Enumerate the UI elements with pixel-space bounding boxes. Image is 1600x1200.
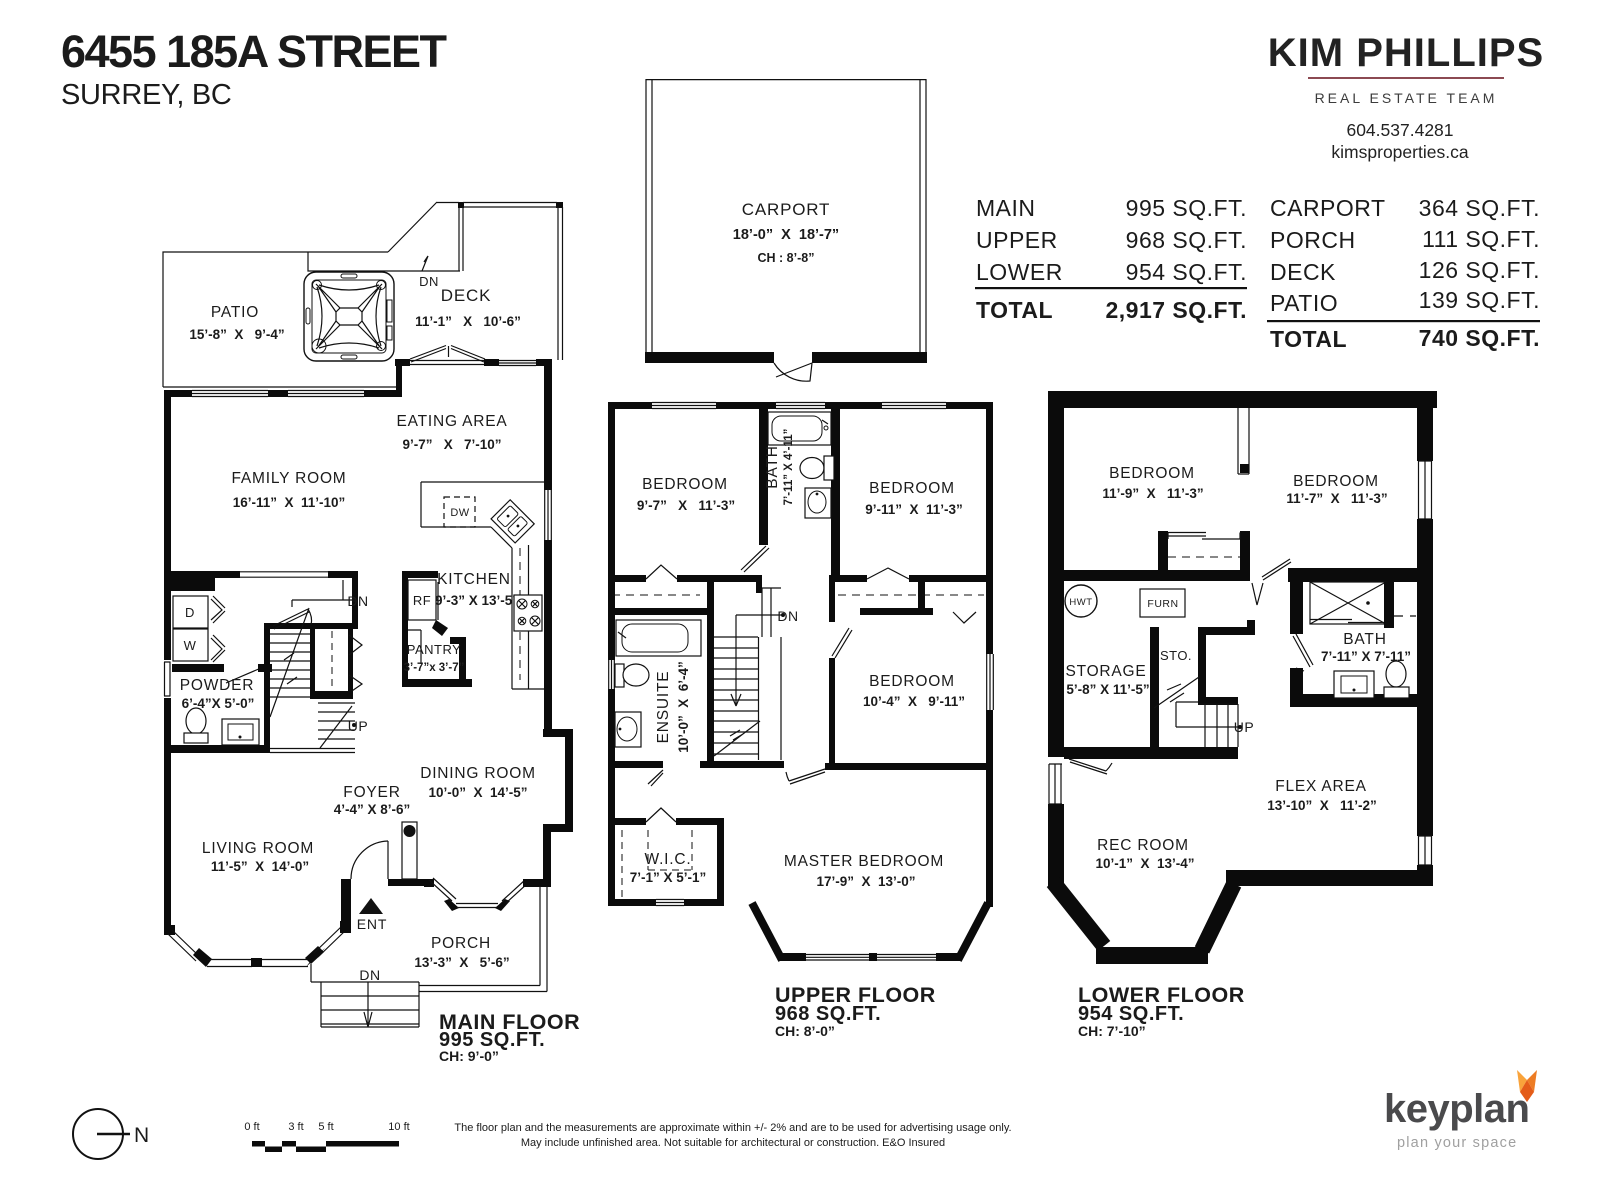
svg-text:PORCH: PORCH bbox=[431, 935, 491, 952]
svg-text:18’-0” X 18’-7”: 18’-0” X 18’-7” bbox=[733, 227, 839, 243]
svg-text:11’-9” X 11’-3”: 11’-9” X 11’-3” bbox=[1102, 486, 1203, 501]
svg-text:POWDER: POWDER bbox=[180, 677, 255, 694]
svg-text:REAL ESTATE TEAM: REAL ESTATE TEAM bbox=[1315, 90, 1498, 106]
svg-text:968 SQ.FT.: 968 SQ.FT. bbox=[775, 1003, 881, 1025]
svg-text:CARPORT: CARPORT bbox=[742, 200, 830, 219]
svg-text:TOTAL: TOTAL bbox=[976, 297, 1053, 323]
svg-text:ENSUITE: ENSUITE bbox=[655, 671, 672, 744]
svg-text:DN: DN bbox=[419, 274, 439, 289]
svg-text:RF: RF bbox=[413, 593, 431, 608]
svg-text:139 SQ.FT.: 139 SQ.FT. bbox=[1419, 287, 1540, 313]
svg-text:May include unfinished area. N: May include unfinished area. Not suitabl… bbox=[521, 1137, 945, 1149]
svg-text:DN: DN bbox=[359, 967, 380, 983]
svg-text:LOWER: LOWER bbox=[976, 259, 1063, 285]
svg-text:BATH: BATH bbox=[764, 445, 781, 488]
svg-text:9’-7” X 7’-10”: 9’-7” X 7’-10” bbox=[402, 437, 501, 452]
svg-text:BEDROOM: BEDROOM bbox=[869, 673, 955, 690]
svg-text:EATING AREA: EATING AREA bbox=[396, 413, 507, 430]
svg-text:ENT: ENT bbox=[357, 916, 387, 932]
svg-text:UPPER: UPPER bbox=[976, 227, 1058, 253]
svg-text:plan your space: plan your space bbox=[1397, 1135, 1517, 1151]
svg-text:SURREY, BC: SURREY, BC bbox=[61, 79, 232, 111]
svg-text:995 SQ.FT.: 995 SQ.FT. bbox=[1126, 195, 1247, 221]
svg-text:FOYER: FOYER bbox=[343, 784, 400, 801]
svg-text:DN: DN bbox=[777, 608, 798, 624]
svg-text:17’-9” X 13’-0”: 17’-9” X 13’-0” bbox=[816, 874, 915, 889]
svg-text:954 SQ.FT.: 954 SQ.FT. bbox=[1078, 1003, 1184, 1025]
svg-text:PATIO: PATIO bbox=[211, 304, 259, 321]
svg-text:CH: 9’-0”: CH: 9’-0” bbox=[439, 1048, 499, 1064]
svg-text:STORAGE: STORAGE bbox=[1065, 663, 1146, 680]
svg-text:FLEX AREA: FLEX AREA bbox=[1275, 778, 1367, 795]
svg-text:10’-0” X 6’-4”: 10’-0” X 6’-4” bbox=[676, 661, 691, 753]
svg-text:604.537.4281: 604.537.4281 bbox=[1346, 120, 1453, 140]
svg-text:13’-10” X 11’-2”: 13’-10” X 11’-2” bbox=[1267, 798, 1377, 813]
svg-text:9’-3” X 13’-5”: 9’-3” X 13’-5” bbox=[435, 593, 519, 608]
svg-text:DN: DN bbox=[347, 593, 368, 609]
svg-text:968 SQ.FT.: 968 SQ.FT. bbox=[1126, 227, 1247, 253]
svg-text:13’-3” X 5’-6”: 13’-3” X 5’-6” bbox=[414, 955, 509, 970]
svg-text:LIVING ROOM: LIVING ROOM bbox=[202, 840, 314, 857]
svg-text:2,917 SQ.FT.: 2,917 SQ.FT. bbox=[1105, 297, 1247, 323]
svg-text:10’-1” X 13’-4”: 10’-1” X 13’-4” bbox=[1095, 856, 1194, 871]
svg-text:CH: 8’-0”: CH: 8’-0” bbox=[775, 1023, 835, 1039]
svg-text:11’-1” X 10’-6”: 11’-1” X 10’-6” bbox=[415, 314, 521, 329]
svg-text:9’-11” X 11’-3”: 9’-11” X 11’-3” bbox=[865, 502, 963, 517]
svg-text:UP: UP bbox=[1234, 719, 1254, 735]
svg-text:4’-4” X 8’-6”: 4’-4” X 8’-6” bbox=[334, 802, 411, 817]
svg-text:PATIO: PATIO bbox=[1270, 290, 1338, 316]
svg-text:111 SQ.FT.: 111 SQ.FT. bbox=[1422, 226, 1540, 252]
svg-text:BEDROOM: BEDROOM bbox=[1109, 465, 1195, 482]
svg-text:15’-8” X 9’-4”: 15’-8” X 9’-4” bbox=[189, 327, 284, 342]
svg-text:10 ft: 10 ft bbox=[388, 1121, 409, 1133]
svg-text:STO.: STO. bbox=[1160, 648, 1192, 663]
svg-text:5 ft: 5 ft bbox=[318, 1121, 333, 1133]
svg-text:954 SQ.FT.: 954 SQ.FT. bbox=[1126, 259, 1247, 285]
svg-text:9’-7” X 11’-3”: 9’-7” X 11’-3” bbox=[637, 498, 735, 513]
svg-text:11’-7” X 11’-3”: 11’-7” X 11’-3” bbox=[1286, 491, 1387, 506]
svg-text:BEDROOM: BEDROOM bbox=[1293, 473, 1379, 490]
svg-text:PANTRY: PANTRY bbox=[407, 642, 462, 657]
svg-text:126 SQ.FT.: 126 SQ.FT. bbox=[1419, 257, 1540, 283]
svg-text:FAMILY ROOM: FAMILY ROOM bbox=[231, 470, 346, 487]
svg-text:BATH: BATH bbox=[1343, 631, 1386, 648]
svg-text:364 SQ.FT.: 364 SQ.FT. bbox=[1419, 195, 1540, 221]
svg-text:DINING ROOM: DINING ROOM bbox=[420, 765, 536, 782]
svg-text:CARPORT: CARPORT bbox=[1270, 195, 1386, 221]
svg-text:3’-7”x 3’-7”: 3’-7”x 3’-7” bbox=[404, 662, 465, 674]
svg-text:TOTAL: TOTAL bbox=[1270, 326, 1347, 352]
svg-text:BEDROOM: BEDROOM bbox=[869, 480, 955, 497]
svg-text:kimsproperties.ca: kimsproperties.ca bbox=[1331, 142, 1468, 162]
svg-text:6455 185A STREET: 6455 185A STREET bbox=[61, 26, 447, 77]
svg-text:10’-0” X 14’-5”: 10’-0” X 14’-5” bbox=[428, 785, 527, 800]
svg-text:5’-8” X 11’-5”: 5’-8” X 11’-5” bbox=[1066, 682, 1149, 697]
svg-text:DW: DW bbox=[450, 507, 469, 519]
svg-text:11’-5” X 14’-0”: 11’-5” X 14’-0” bbox=[211, 859, 309, 874]
svg-text:10’-4” X 9’-11”: 10’-4” X 9’-11” bbox=[863, 694, 965, 709]
svg-text:keyplan: keyplan bbox=[1384, 1087, 1529, 1131]
svg-text:HWT: HWT bbox=[1069, 597, 1092, 608]
svg-text:CH : 8’-8”: CH : 8’-8” bbox=[758, 251, 815, 265]
svg-text:PORCH: PORCH bbox=[1270, 227, 1356, 253]
svg-text:CH: 7’-10”: CH: 7’-10” bbox=[1078, 1023, 1146, 1039]
svg-text:7’-11” X 4’-11”: 7’-11” X 4’-11” bbox=[783, 429, 795, 506]
svg-text:DECK: DECK bbox=[1270, 259, 1336, 285]
svg-text:W: W bbox=[184, 638, 197, 653]
svg-text:W.I.C.: W.I.C. bbox=[645, 851, 692, 868]
svg-text:UP: UP bbox=[348, 718, 368, 734]
svg-text:FURN: FURN bbox=[1147, 598, 1178, 610]
svg-text:N: N bbox=[134, 1124, 149, 1147]
svg-text:3 ft: 3 ft bbox=[288, 1121, 303, 1133]
svg-text:D: D bbox=[185, 605, 195, 620]
svg-text:KITCHEN: KITCHEN bbox=[437, 571, 511, 588]
svg-text:BEDROOM: BEDROOM bbox=[642, 476, 728, 493]
svg-text:MAIN: MAIN bbox=[976, 195, 1036, 221]
svg-text:MASTER BEDROOM: MASTER BEDROOM bbox=[784, 853, 944, 870]
svg-text:KIM PHILLIPS: KIM PHILLIPS bbox=[1268, 31, 1544, 75]
svg-text:DECK: DECK bbox=[441, 286, 491, 305]
svg-text:6’-4”X 5’-0”: 6’-4”X 5’-0” bbox=[182, 696, 255, 711]
svg-text:REC ROOM: REC ROOM bbox=[1097, 837, 1189, 854]
svg-text:7’-1” X 5’-1”: 7’-1” X 5’-1” bbox=[630, 870, 707, 885]
svg-text:0 ft: 0 ft bbox=[244, 1121, 259, 1133]
svg-text:The floor plan and the measure: The floor plan and the measurements are … bbox=[454, 1122, 1011, 1134]
svg-text:740 SQ.FT.: 740 SQ.FT. bbox=[1419, 325, 1540, 351]
svg-text:16’-11” X 11’-10”: 16’-11” X 11’-10” bbox=[233, 495, 346, 510]
